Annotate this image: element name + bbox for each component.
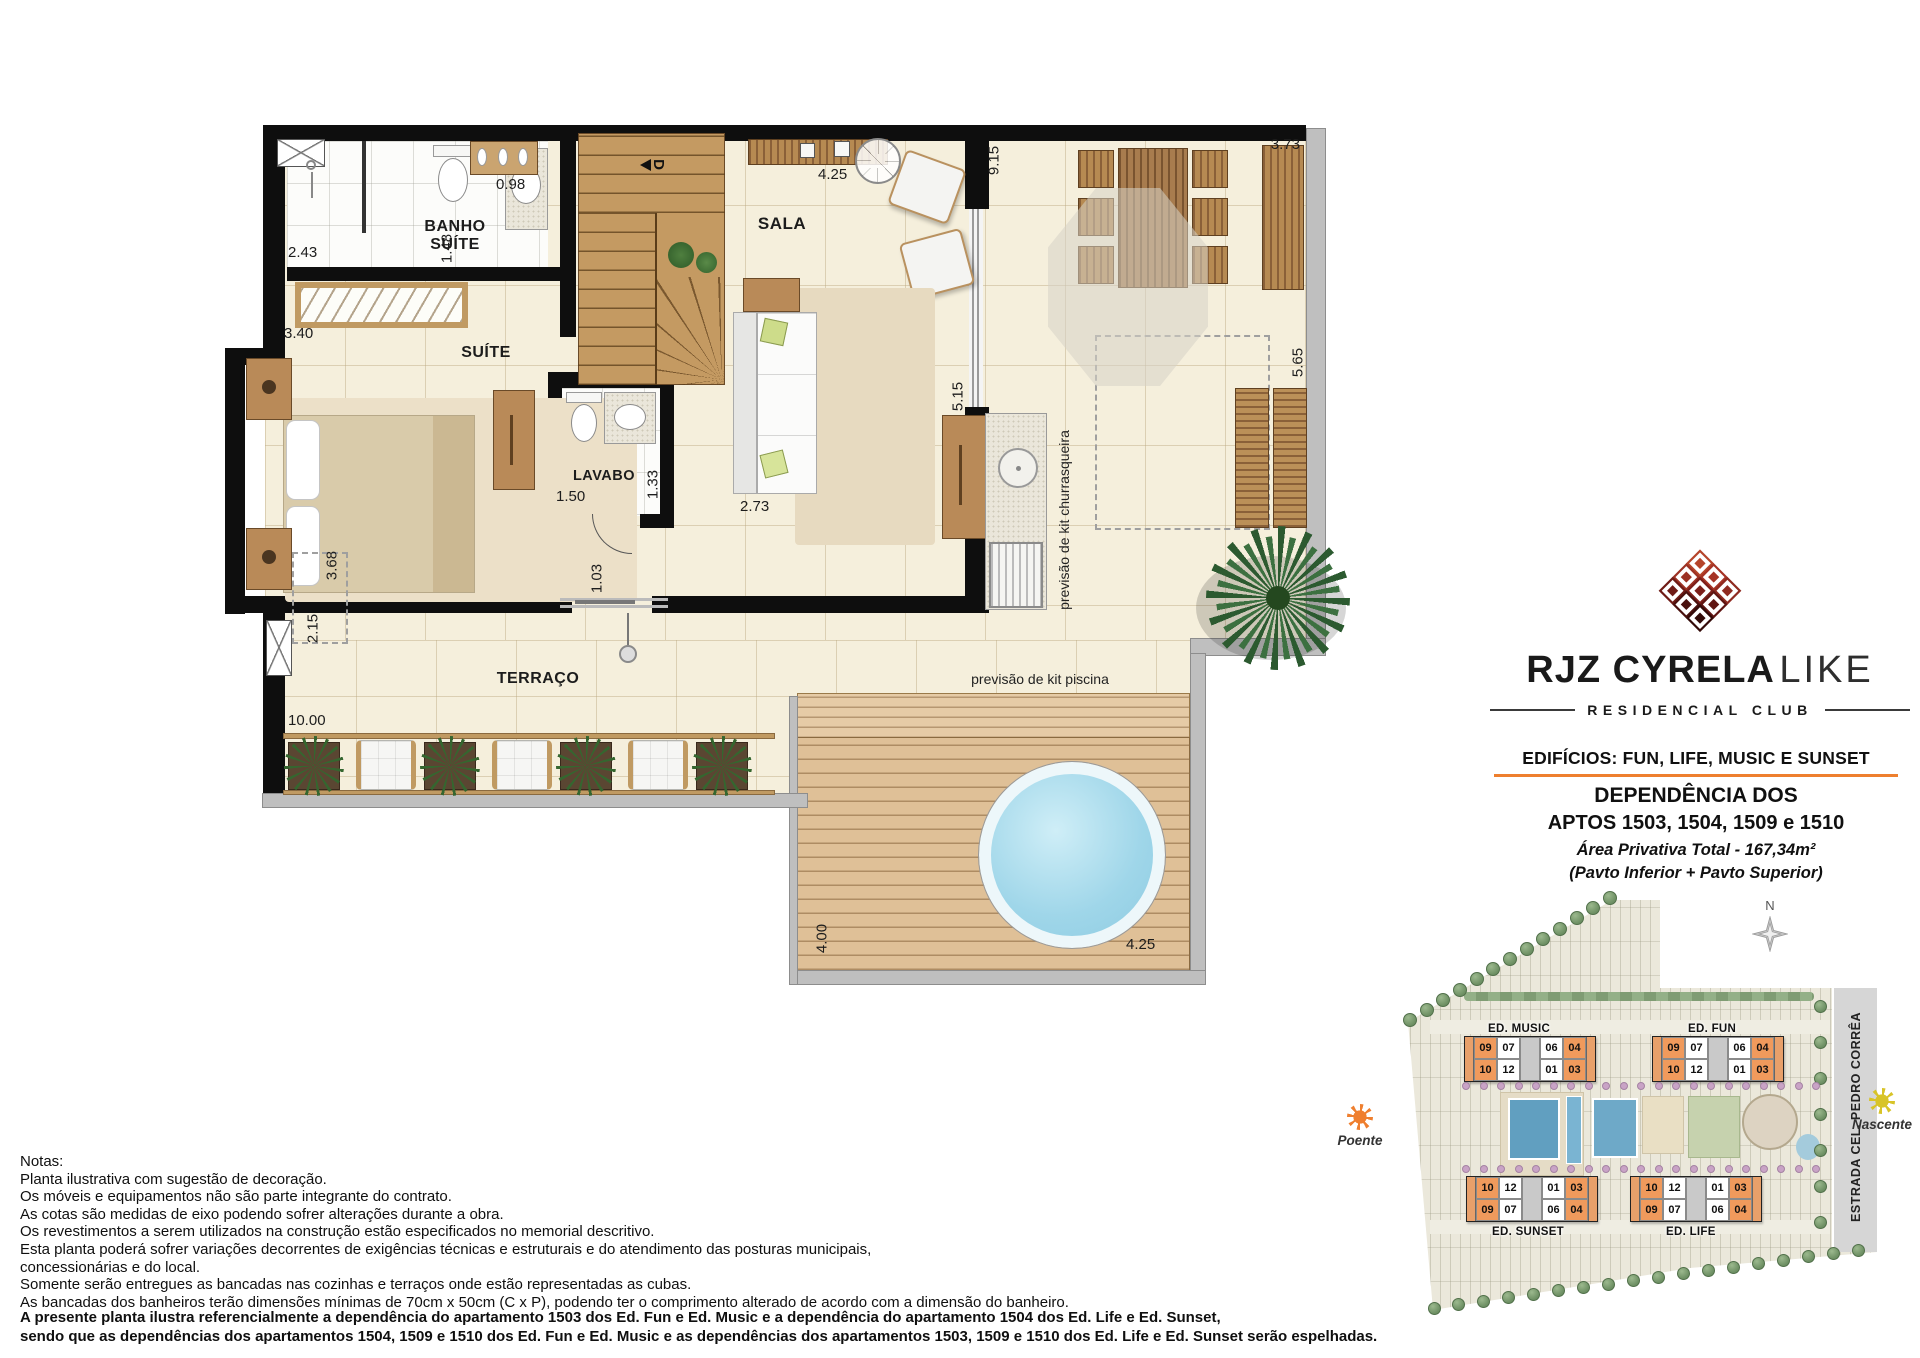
unit-number: 09 (1662, 1037, 1685, 1059)
tree-icon (1502, 1291, 1515, 1304)
shrub-icon (1602, 1082, 1610, 1090)
dim-sofa: 2.73 (740, 498, 769, 515)
dim-terrace-width: 10.00 (288, 712, 326, 729)
closet (295, 282, 468, 328)
shower-partition (362, 141, 366, 233)
unit-number: 12 (1499, 1177, 1522, 1199)
planter-trim (283, 790, 775, 795)
border-deck-bottom (797, 970, 1206, 985)
unit-number: 03 (1563, 1059, 1586, 1081)
deck-step (797, 693, 1190, 739)
shrub-icon (1672, 1082, 1680, 1090)
drain-icon (1016, 466, 1021, 471)
tree-icon (1403, 1013, 1417, 1027)
tree-icon (1470, 972, 1484, 986)
tree-icon (1552, 1284, 1565, 1297)
pillar-icon (266, 620, 292, 676)
room-label-sala: SALA (730, 214, 834, 234)
dim-terrace-top: 9.15 (986, 133, 1003, 189)
sun-lounger (1273, 388, 1307, 528)
shrub-icon (1655, 1165, 1663, 1173)
unit-number: 01 (1542, 1177, 1565, 1199)
dim-banho: 1.48 (439, 221, 456, 277)
shrub-icon (1760, 1165, 1768, 1173)
sun-icon (1347, 1104, 1373, 1130)
dim-lavabo-depth: 1.33 (645, 459, 662, 511)
shrub-icon (1532, 1082, 1540, 1090)
dim-deck-height: 4.00 (814, 911, 831, 967)
shrub-icon (1777, 1082, 1785, 1090)
building-ed-life: 10 12 01 03 09 07 06 04 (1630, 1176, 1762, 1222)
tree-icon (1627, 1274, 1640, 1287)
unit-number: 04 (1565, 1199, 1588, 1221)
unit-number: 09 (1476, 1199, 1499, 1221)
floor-terrace-strip (276, 640, 1190, 696)
shrub-icon (1760, 1082, 1768, 1090)
shrub-icon (1620, 1165, 1628, 1173)
unit-number: 04 (1729, 1199, 1752, 1221)
sun-west-label: Poente (1330, 1133, 1390, 1148)
shrub-icon (1637, 1165, 1645, 1173)
wall-stairs-left (560, 125, 576, 337)
dim-door: 1.03 (589, 552, 606, 606)
building-label-ed-fun: ED. FUN (1688, 1023, 1736, 1035)
tree-icon (1814, 1216, 1827, 1229)
unit-number: 07 (1497, 1037, 1520, 1059)
shrub-icon (1637, 1082, 1645, 1090)
terrace-cushion (356, 740, 416, 790)
tree-icon (1536, 932, 1550, 946)
shrub-icon (1567, 1082, 1575, 1090)
unit-number: 10 (1474, 1059, 1497, 1081)
tree-icon (1553, 922, 1567, 936)
building-label-ed-sunset: ED. SUNSET (1492, 1226, 1564, 1238)
shrub-icon (1515, 1082, 1523, 1090)
tree-icon (1603, 891, 1617, 905)
building-wing (1752, 1177, 1761, 1221)
building-wing (1653, 1037, 1662, 1081)
tree-icon (1827, 1247, 1840, 1260)
notes-line: As cotas são medidas de eixo podendo sof… (20, 1206, 1069, 1224)
unit-number: 03 (1751, 1059, 1774, 1081)
brand-subtitle: RESIDENCIAL CLUB (1587, 702, 1812, 718)
notes-line: Esta planta poderá sofrer variações deco… (20, 1241, 1069, 1259)
plant-icon (696, 252, 717, 273)
sun-lounger (1235, 388, 1269, 528)
shrub-icon (1585, 1165, 1593, 1173)
building-label-ed-life: ED. LIFE (1666, 1226, 1716, 1238)
building-units: 10 12 01 03 09 07 06 04 (1640, 1177, 1752, 1221)
building-units: 10 12 01 03 09 07 06 04 (1476, 1177, 1588, 1221)
tree-icon (1420, 1003, 1434, 1017)
building-core (1686, 1177, 1706, 1221)
sliding-glass-door (969, 209, 983, 407)
annotation-churrasqueira: previsão de kit churrasqueira (1056, 418, 1072, 622)
sofa-pillow (760, 318, 788, 346)
slider-track (560, 605, 668, 608)
room-label-terraco: TERRAÇO (468, 670, 608, 688)
shrub-icon (1777, 1165, 1785, 1173)
building-units: 09 07 06 04 10 12 01 03 (1662, 1037, 1774, 1081)
outdoor-chair (1192, 198, 1228, 236)
shrub-icon (1812, 1165, 1820, 1173)
shoe-icon (498, 148, 508, 166)
brand-title: RJZ CYRELA LIKE (1490, 649, 1910, 692)
toilet-icon (438, 158, 468, 202)
shrub-icon (1532, 1165, 1540, 1173)
tree-icon (1428, 1302, 1441, 1315)
tree-icon (1520, 942, 1534, 956)
pool (979, 762, 1165, 948)
shrub-icon (1795, 1165, 1803, 1173)
border-deck-left (789, 696, 798, 985)
divider-line (1825, 709, 1910, 711)
planter-trim (283, 733, 775, 739)
toilet-icon (571, 404, 597, 442)
unit-number: 03 (1729, 1177, 1752, 1199)
stairs-winders (657, 277, 725, 385)
area-line: Área Privativa Total - 167,34m² (1488, 841, 1904, 860)
notes-title: Notas: (20, 1153, 1069, 1171)
shoe-icon (518, 148, 528, 166)
dependencia-line: DEPENDÊNCIA DOS (1488, 784, 1904, 808)
tree-icon (1677, 1267, 1690, 1280)
side-table (743, 278, 800, 312)
compass-icon (1752, 916, 1788, 952)
unit-number: 03 (1565, 1177, 1588, 1199)
sun-east-label: Nascente (1846, 1117, 1918, 1132)
building-wing (1774, 1037, 1783, 1081)
unit-number: 12 (1685, 1059, 1708, 1081)
unit-number: 09 (1640, 1199, 1663, 1221)
border-deck-right (1190, 653, 1206, 985)
unit-number: 04 (1563, 1037, 1586, 1059)
wall-lavabo-right (660, 372, 674, 514)
tree-icon (1477, 1295, 1490, 1308)
building-core (1520, 1037, 1540, 1081)
room-label-suite: SUÍTE (436, 344, 536, 362)
bed-foot-throw (433, 416, 474, 592)
shrub-icon (1497, 1082, 1505, 1090)
building-wing (1588, 1177, 1597, 1221)
unit-number: 06 (1540, 1037, 1563, 1059)
lavabo-sink-icon (614, 404, 646, 430)
bbq-grill-icon (989, 542, 1043, 608)
tree-icon (1486, 962, 1500, 976)
wall-bottom-east (652, 596, 988, 613)
orange-rule (1494, 774, 1898, 777)
dim-terrace-left: 2.15 (305, 601, 322, 657)
shrub-icon (1585, 1082, 1593, 1090)
unit-number: 01 (1540, 1059, 1563, 1081)
speaker-icon (800, 143, 815, 158)
stairs-direction-label: D (650, 159, 667, 170)
shrub-icon (1602, 1165, 1610, 1173)
lamp-icon (262, 550, 276, 564)
brand-name: RJZ CYRELA (1526, 649, 1775, 691)
building-wing (1631, 1177, 1640, 1221)
dim-lavabo-width: 1.50 (556, 488, 585, 505)
dim-deck-width: 4.25 (1126, 936, 1155, 953)
dim-tv-wall: 4.25 (818, 166, 847, 183)
shower-head-icon (306, 160, 316, 170)
sala-cabinet (942, 415, 986, 539)
unit-number: 01 (1706, 1177, 1729, 1199)
plant-icon (420, 736, 480, 796)
tree-icon (1852, 1244, 1865, 1257)
plant-icon (668, 242, 694, 268)
notes-line: Os revestimentos a serem utilizados na c… (20, 1223, 1069, 1241)
shrub-icon (1707, 1165, 1715, 1173)
room-label-lavabo: LAVABO (552, 468, 656, 485)
divider-line (1490, 709, 1575, 711)
sun-west: Poente (1330, 1104, 1390, 1148)
shrub-icon (1707, 1082, 1715, 1090)
notes-line: Somente serão entregues as bancadas nas … (20, 1276, 1069, 1294)
shrub-icon (1550, 1165, 1558, 1173)
building-wing (1586, 1037, 1595, 1081)
tree-icon (1586, 901, 1600, 915)
speaker-icon (834, 141, 850, 157)
shrub-icon (1795, 1082, 1803, 1090)
brand-name-light: LIKE (1779, 649, 1873, 691)
unit-number: 06 (1542, 1199, 1565, 1221)
tree-icon (1652, 1271, 1665, 1284)
plant-icon (556, 736, 616, 796)
shrub-icon (1655, 1082, 1663, 1090)
round-chair-icon (855, 138, 901, 184)
shrub-icon (1480, 1082, 1488, 1090)
tree-icon (1752, 1257, 1765, 1270)
tree-icon (1503, 952, 1517, 966)
site-plan-foreground: N ED. MUSIC 09 07 06 04 10 12 01 03 ED. … (1400, 896, 1880, 1316)
sun-east: Nascente (1846, 1088, 1918, 1132)
unit-number: 10 (1640, 1177, 1663, 1199)
unit-number: 10 (1476, 1177, 1499, 1199)
building-core (1522, 1177, 1542, 1221)
terrace-shower-pole (627, 613, 629, 647)
building-wing (1465, 1037, 1474, 1081)
wall-banho-bottom (287, 267, 564, 281)
notes-block: Notas: Planta ilustrativa com sugestão d… (20, 1153, 1069, 1311)
shrub-icon (1742, 1165, 1750, 1173)
shrub-icon (1550, 1082, 1558, 1090)
shrub-icon (1725, 1165, 1733, 1173)
tree-icon (1814, 1144, 1827, 1157)
tree-icon (1814, 1036, 1827, 1049)
shrub-icon (1690, 1165, 1698, 1173)
unit-number: 12 (1663, 1177, 1686, 1199)
tree-icon (1436, 993, 1450, 1007)
stairs-treads-left (578, 213, 656, 385)
wall-left-mid (225, 348, 245, 614)
annotation-piscina: previsão de kit piscina (950, 671, 1130, 687)
tree-icon (1527, 1288, 1540, 1301)
unit-number: 07 (1499, 1199, 1522, 1221)
notes-bold-line: A presente planta ilustra referencialmen… (20, 1309, 1377, 1328)
dim-closet: 3.40 (284, 325, 313, 342)
shrub-icon (1725, 1082, 1733, 1090)
edificios-line: EDIFÍCIOS: FUN, LIFE, MUSIC E SUNSET (1488, 748, 1904, 769)
tree-icon (1602, 1278, 1615, 1291)
dim-shoe-rack: 0.98 (496, 176, 525, 193)
unit-number: 04 (1751, 1037, 1774, 1059)
shrub-icon (1497, 1165, 1505, 1173)
notes-line: Os móveis e equipamentos não são parte i… (20, 1188, 1069, 1206)
dim-right-side: 5.65 (1290, 335, 1307, 391)
cabinet-handle-icon (959, 445, 962, 505)
unit-number: 01 (1728, 1059, 1751, 1081)
tree-icon (1814, 1108, 1827, 1121)
tree-icon (1814, 1180, 1827, 1193)
building-label-ed-music: ED. MUSIC (1488, 1023, 1550, 1035)
shrub-icon (1742, 1082, 1750, 1090)
unit-number: 07 (1685, 1037, 1708, 1059)
unit-number: 06 (1728, 1037, 1751, 1059)
lamp-icon (262, 380, 276, 394)
tree-icon (1802, 1250, 1815, 1263)
unit-number: 09 (1474, 1037, 1497, 1059)
info-block: EDIFÍCIOS: FUN, LIFE, MUSIC E SUNSET DEP… (1488, 748, 1904, 883)
building-wing (1467, 1177, 1476, 1221)
stairs-direction: D (640, 156, 664, 173)
shaft-icon (277, 139, 325, 167)
toilet-tank (433, 145, 473, 157)
tree-icon (1814, 1000, 1827, 1013)
tree-icon (1777, 1254, 1790, 1267)
plant-icon (692, 736, 752, 796)
unit-number: 10 (1662, 1059, 1685, 1081)
notes-line: concessionárias e do local. (20, 1259, 1069, 1277)
building-ed-fun: 09 07 06 04 10 12 01 03 (1652, 1036, 1784, 1082)
shrub-icon (1672, 1165, 1680, 1173)
shrub-icon (1567, 1165, 1575, 1173)
notes-bold-block: A presente planta ilustra referencialmen… (20, 1309, 1377, 1346)
terrace-cushion (628, 740, 688, 790)
shrub-icon (1690, 1082, 1698, 1090)
tree-icon (1577, 1281, 1590, 1294)
tree-icon (1727, 1261, 1740, 1274)
cabinet-handle-icon (510, 415, 513, 465)
pillow (286, 420, 320, 500)
outdoor-bench (1262, 145, 1304, 290)
stairs-treads-top (578, 133, 725, 213)
dim-shower: 2.43 (288, 244, 317, 261)
building-ed-music: 09 07 06 04 10 12 01 03 (1464, 1036, 1596, 1082)
tree-icon (1570, 911, 1584, 925)
brand-diamond-icon (1656, 548, 1744, 636)
dim-suite-wall: 3.68 (324, 538, 341, 594)
shrub-icon (1515, 1165, 1523, 1173)
unit-number: 07 (1663, 1199, 1686, 1221)
terrace-cushion (492, 740, 552, 790)
brand-block: RJZ CYRELA LIKE RESIDENCIAL CLUB (1490, 548, 1910, 718)
palm-trunk-icon (1266, 586, 1290, 610)
unit-number: 06 (1706, 1199, 1729, 1221)
shoe-icon (477, 148, 487, 166)
plant-icon (284, 736, 344, 796)
tree-icon (1453, 983, 1467, 997)
terrace-shower-icon (619, 645, 637, 663)
shrub-icon (1620, 1082, 1628, 1090)
brand-subtitle-row: RESIDENCIAL CLUB (1490, 702, 1910, 718)
shrub-icon (1462, 1082, 1470, 1090)
shower-hose-icon (311, 172, 313, 198)
pavto-line: (Pavto Inferior + Pavto Superior) (1488, 864, 1904, 883)
notes-bold-line: sendo que as dependências dos apartament… (20, 1328, 1377, 1347)
shrub-icon (1462, 1165, 1470, 1173)
tree-icon (1452, 1298, 1465, 1311)
compass-n-label: N (1758, 898, 1782, 913)
sun-icon (1869, 1088, 1895, 1114)
tree-icon (1702, 1264, 1715, 1277)
aptos-line: APTOS 1503, 1504, 1509 e 1510 (1488, 812, 1904, 835)
notes-line: Planta ilustrativa com sugestão de decor… (20, 1171, 1069, 1189)
dim-terrace-mid: 5.15 (950, 369, 967, 425)
sofa-back (733, 312, 757, 494)
shrub-icon (1480, 1165, 1488, 1173)
page: D (0, 0, 1920, 1358)
toilet-tank (566, 392, 602, 403)
unit-number: 12 (1497, 1059, 1520, 1081)
building-core (1708, 1037, 1728, 1081)
outdoor-chair (1192, 150, 1228, 188)
dim-corner: 3.73 (1248, 136, 1300, 153)
building-ed-sunset: 10 12 01 03 09 07 06 04 (1466, 1176, 1598, 1222)
shrub-icon (1812, 1082, 1820, 1090)
wall-lavabo-bottom-right (640, 514, 674, 528)
suite-cabinet (493, 390, 535, 490)
building-units: 09 07 06 04 10 12 01 03 (1474, 1037, 1586, 1081)
outdoor-chair (1078, 150, 1114, 188)
